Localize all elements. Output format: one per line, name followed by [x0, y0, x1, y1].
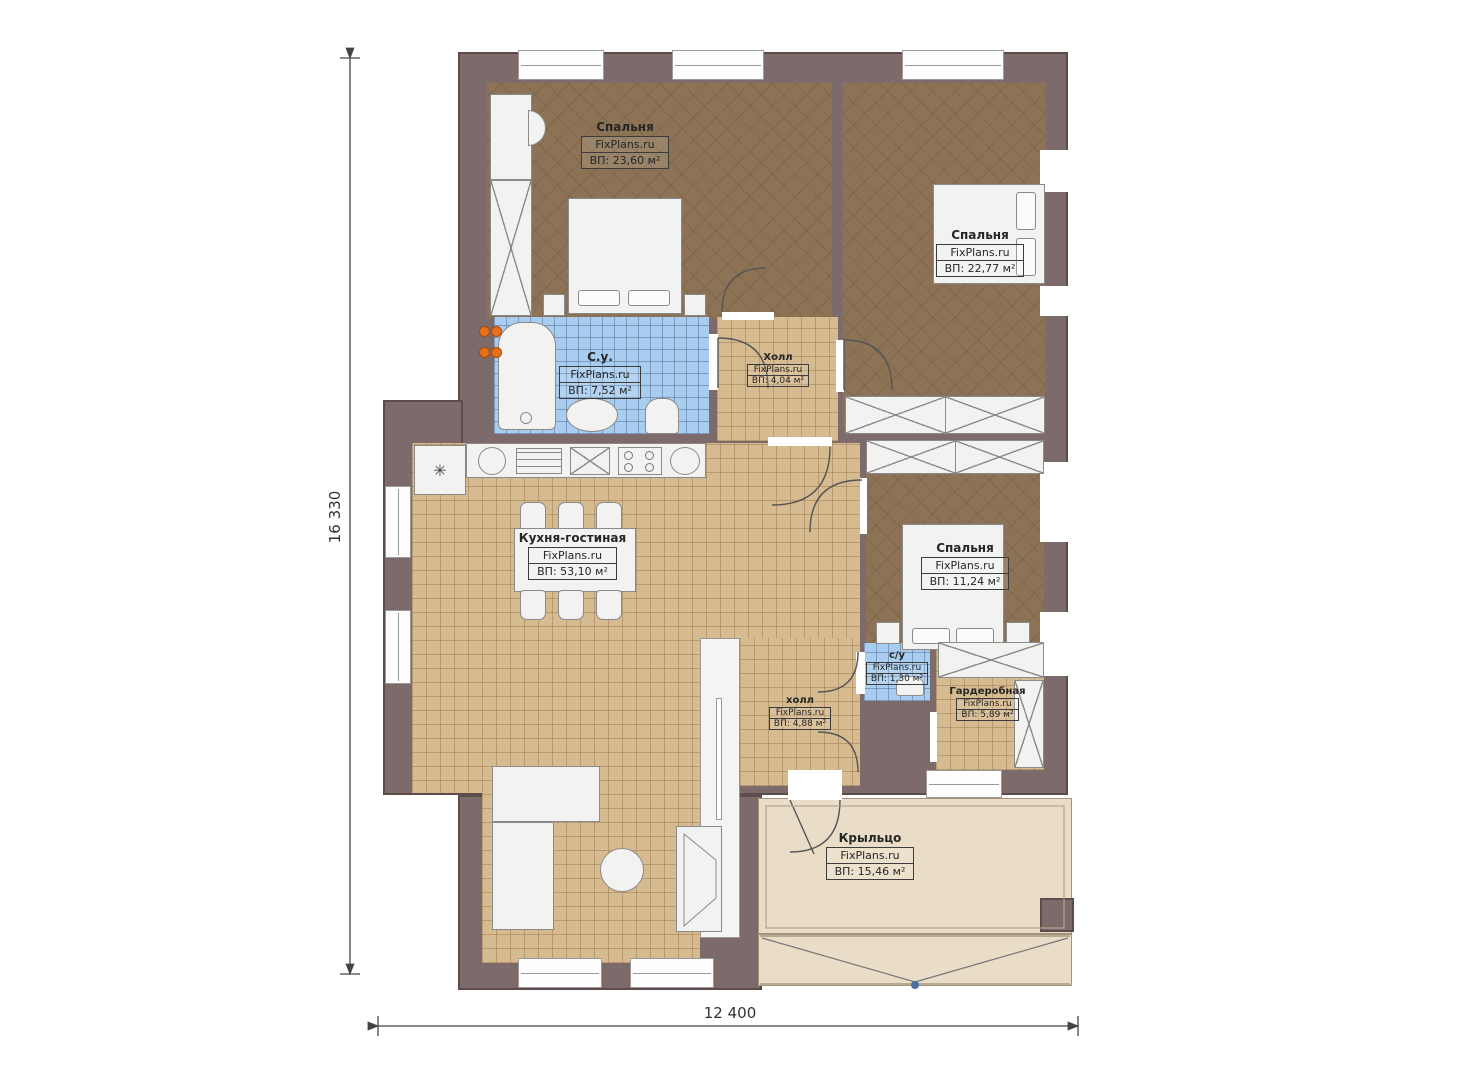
kitchen-drawers — [516, 448, 562, 474]
door-gap-porch-entry — [788, 770, 842, 800]
wardrobe-bedroom2 — [845, 396, 1045, 434]
sofa-chaise — [492, 766, 600, 822]
chair — [558, 590, 584, 620]
fridge-symbol: ✳ — [414, 445, 466, 495]
window-left-1 — [385, 486, 411, 558]
door-gap-bedroom2 — [836, 340, 844, 392]
niche-right-3 — [1040, 462, 1068, 542]
boiler-dot — [479, 326, 490, 337]
sofa-body — [492, 822, 554, 930]
door-gap-bedroom1 — [722, 312, 774, 320]
partition-console — [716, 698, 722, 820]
boiler-dot — [491, 326, 502, 337]
wardrobe-bedroom1 — [490, 180, 532, 316]
window-porch — [926, 770, 1002, 798]
door-gap-bedroom3 — [860, 478, 867, 534]
label-hall2: холл FixPlans.ru ВП: 4,88 м² — [742, 695, 858, 730]
coffee-table — [600, 848, 644, 892]
porch-column — [1040, 898, 1074, 932]
nightstand — [543, 294, 565, 316]
kitchen-sink — [478, 447, 506, 475]
window-bottom-2 — [630, 958, 714, 988]
pillow — [578, 290, 620, 306]
nightstand — [1006, 622, 1030, 644]
closet-bedroom1 — [490, 94, 532, 180]
window-left-2 — [385, 610, 411, 684]
boiler-dot — [479, 347, 490, 358]
porch-steps — [758, 934, 1072, 986]
pillow — [628, 290, 670, 306]
window-bottom-1 — [518, 958, 602, 988]
toilet — [645, 398, 679, 434]
label-bedroom1: Спальня FixPlans.ru ВП: 23,60 м² — [545, 120, 705, 169]
niche-right-4 — [1040, 612, 1068, 676]
dimension-height-label: 16 330 — [326, 482, 344, 552]
niche-right-2 — [1040, 286, 1068, 316]
kitchen-sink-2 — [670, 447, 700, 475]
label-kitchen-living: Кухня-гостиная FixPlans.ru ВП: 53,10 м² — [490, 531, 655, 580]
label-wardrobe: Гардеробная FixPlans.ru ВП: 5,89 м² — [915, 686, 1060, 721]
tv-unit — [676, 826, 722, 932]
window-top-2 — [672, 50, 764, 80]
chair — [596, 590, 622, 620]
nightstand — [684, 294, 706, 316]
bathroom-sink — [566, 398, 618, 432]
label-hall: Холл FixPlans.ru ВП: 4,04 м² — [722, 352, 834, 387]
dimension-width-label: 12 400 — [660, 1004, 800, 1022]
wardrobe-rack-top — [938, 642, 1044, 678]
floor-plan-canvas: ✳ — [0, 0, 1474, 1080]
label-bedroom3: Спальня FixPlans.ru ВП: 11,24 м² — [890, 541, 1040, 590]
nightstand — [876, 622, 900, 644]
window-top-3 — [902, 50, 1004, 80]
kitchen-cabinet — [570, 447, 610, 475]
label-bathroom: С.у. FixPlans.ru ВП: 7,52 м² — [525, 350, 675, 399]
bathtub-drain — [520, 412, 532, 424]
chair — [520, 590, 546, 620]
wardrobe-bedroom3 — [866, 440, 1044, 474]
stove — [618, 447, 662, 475]
window-top-1 — [518, 50, 604, 80]
label-bedroom2: Спальня FixPlans.ru ВП: 22,77 м² — [905, 228, 1055, 277]
door-gap-hall-kitchen — [768, 437, 832, 446]
door-gap-bath — [709, 334, 718, 390]
label-porch: Крыльцо FixPlans.ru ВП: 15,46 м² — [795, 831, 945, 880]
pillow — [1016, 192, 1036, 230]
label-wc: с/у FixPlans.ru ВП: 1,30 м² — [855, 650, 939, 685]
boiler-dot — [491, 347, 502, 358]
